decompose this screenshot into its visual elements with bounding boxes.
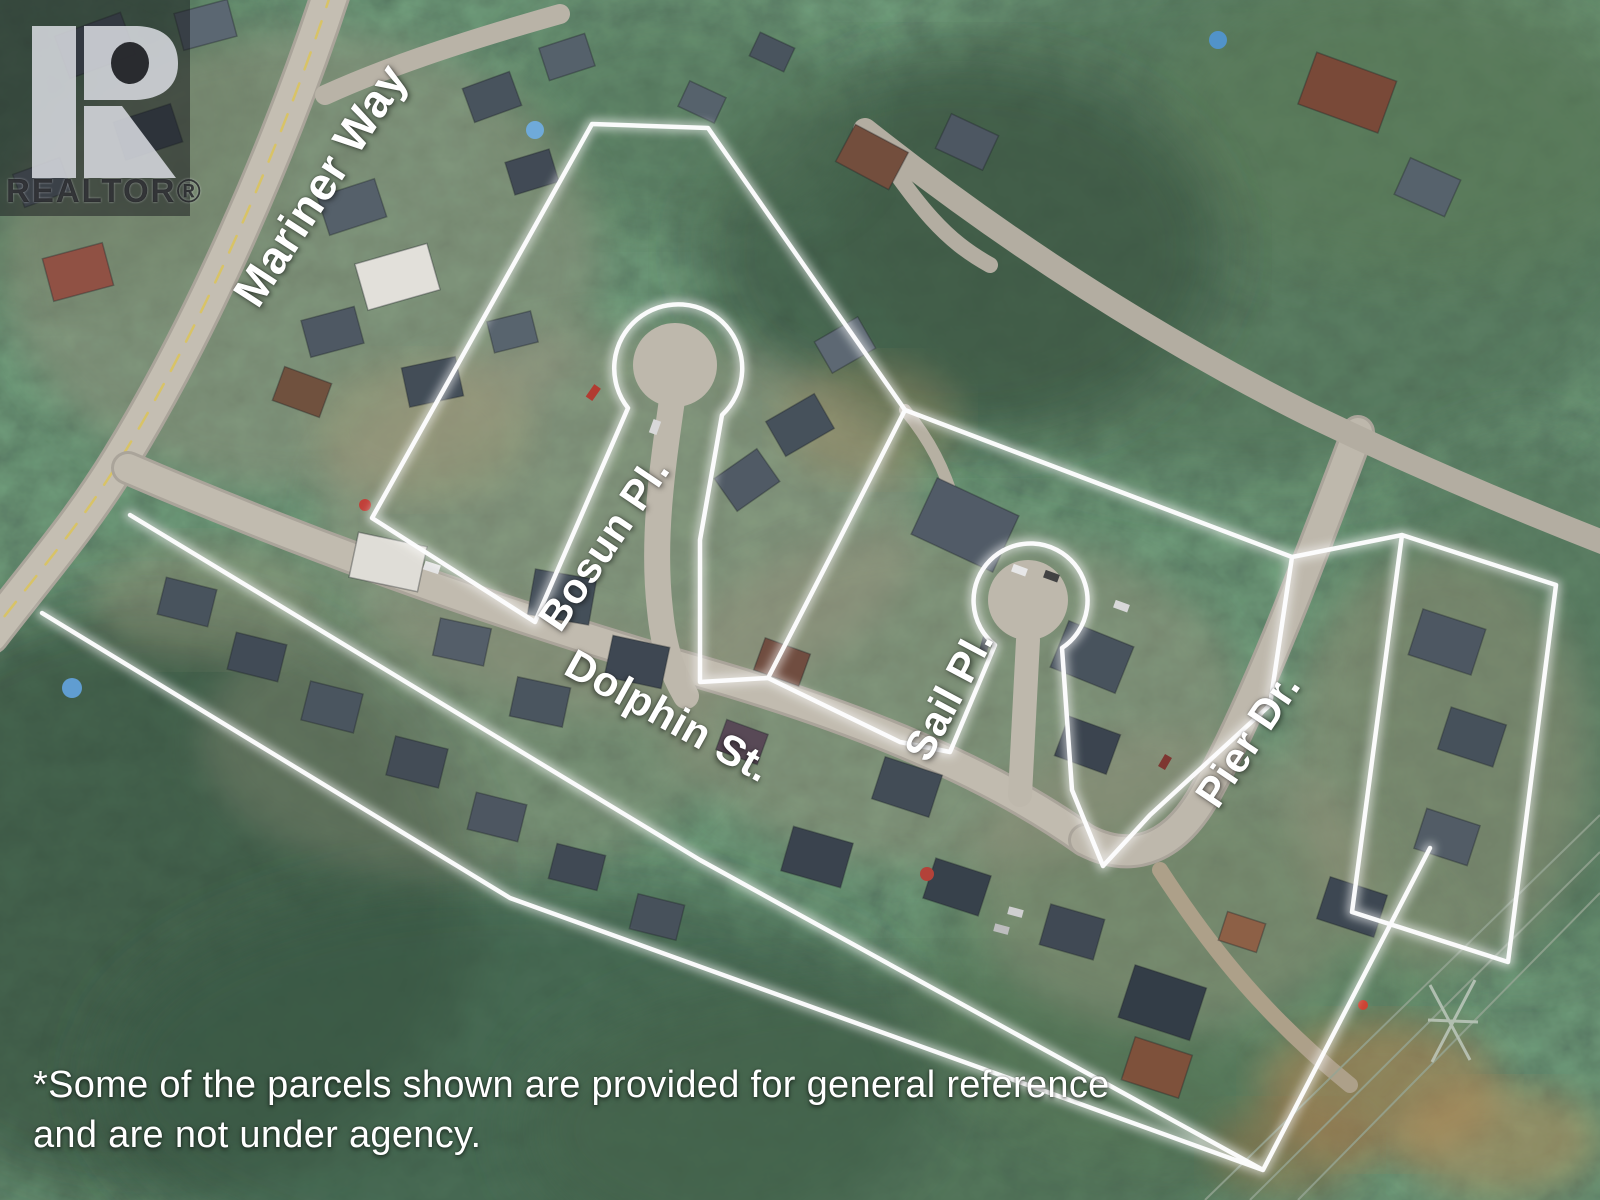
realtor-wordmark: REALTOR® — [6, 172, 188, 210]
aerial-scene — [0, 0, 1600, 1200]
realtor-watermark: REALTOR® — [0, 0, 190, 216]
disclaimer-line-1: *Some of the parcels shown are provided … — [33, 1060, 1110, 1110]
atmospheric-haze — [0, 0, 1600, 1200]
aerial-photo: Mariner Way Bosun Pl. Dolphin St. Sail P… — [0, 0, 1600, 1200]
disclaimer-text: *Some of the parcels shown are provided … — [33, 1060, 1110, 1160]
realtor-logo-icon — [30, 26, 180, 178]
disclaimer-line-2: and are not under agency. — [33, 1110, 1110, 1160]
